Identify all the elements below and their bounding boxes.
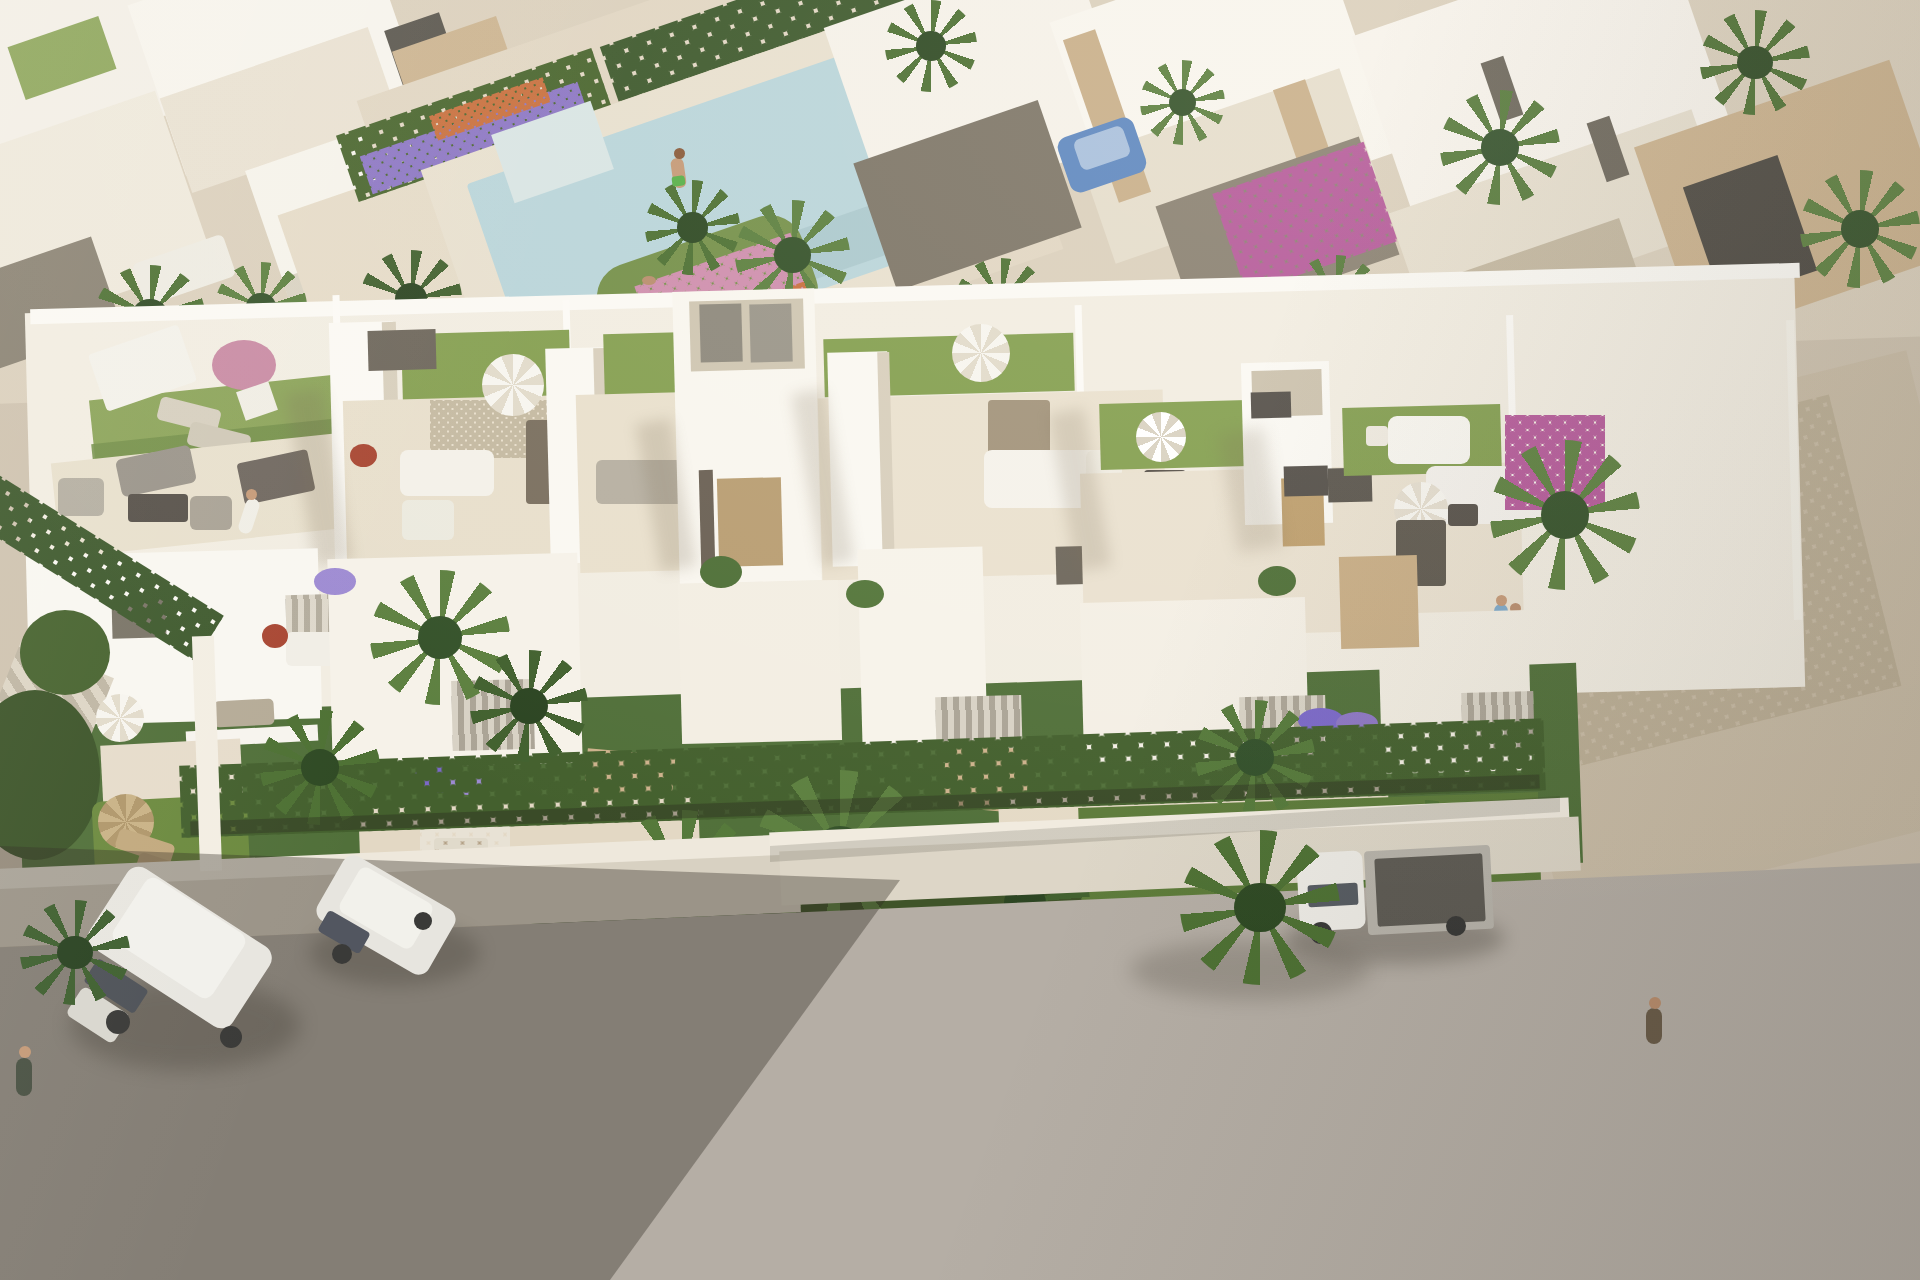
unit2-storage-box xyxy=(367,329,436,371)
unit4-umbrella xyxy=(952,324,1010,382)
truck-wheel-2 xyxy=(1446,916,1466,936)
balcony-plant-2 xyxy=(846,580,884,608)
palm-tr-1-center xyxy=(916,31,945,60)
stone-fin-3 xyxy=(1339,555,1419,649)
unit6-daybed-white xyxy=(1388,416,1470,464)
island-palm-2-center xyxy=(774,237,811,272)
unit2-sofa-white xyxy=(400,450,494,496)
palm-tr-5-center xyxy=(1841,210,1879,248)
van1-wheel-1 xyxy=(106,1010,130,1034)
center-tower-skylight-2 xyxy=(749,303,793,362)
roof-planter-purple xyxy=(314,568,356,595)
left-white-umbrella xyxy=(96,694,144,742)
front-palm-3-center xyxy=(510,688,548,724)
unit2-chaise xyxy=(402,500,454,540)
left-road-tree-center xyxy=(57,936,92,970)
van2-wheel-1 xyxy=(332,944,352,964)
left-roof-armchair-2 xyxy=(190,496,232,530)
balcony-plant-3 xyxy=(1258,566,1296,596)
unit6-side-table xyxy=(1366,426,1388,446)
truck-bed-inner xyxy=(1374,853,1485,927)
van1-wheel-2 xyxy=(220,1026,242,1048)
road-person-body xyxy=(16,1058,32,1096)
unit2-umbrella xyxy=(482,354,544,416)
balcony-person-1-head xyxy=(1496,595,1507,606)
front-palm-2-center xyxy=(418,616,463,659)
unit5-pinwheel-umbrella xyxy=(1136,412,1186,462)
person-pool-deck-shorts xyxy=(671,175,685,187)
big-palm-right-end-center xyxy=(1541,491,1589,539)
front-palm-1-center xyxy=(301,749,339,786)
left-tree-dark-2 xyxy=(20,610,110,695)
island-palm-1-center xyxy=(677,212,707,242)
sidewalk-person-body xyxy=(1646,1008,1662,1044)
sidewalk-person-head xyxy=(1649,997,1661,1009)
left-lounger-pair xyxy=(213,698,274,727)
planter-box-1 xyxy=(1251,391,1292,418)
aerial-3d-render xyxy=(0,0,1920,1280)
road-person-head xyxy=(19,1046,31,1058)
palm-tr-2-center xyxy=(1169,89,1196,116)
balcony-plant-1 xyxy=(700,556,742,588)
center-tower-door-wood xyxy=(717,477,783,567)
left-roof-coffee-table xyxy=(128,494,188,522)
front-palm-7-center xyxy=(1236,739,1274,776)
road-palm-overhang-center xyxy=(1234,883,1285,933)
left-roof-armchair-1 xyxy=(58,478,104,516)
unit2-planter-red xyxy=(350,444,377,467)
center-tower-door-slot xyxy=(699,470,716,568)
left-roof-person-head xyxy=(246,489,257,500)
swimmer-2 xyxy=(642,276,656,285)
palm-tr-4-center xyxy=(1737,46,1772,80)
center-tower-skylight-1 xyxy=(699,303,743,362)
person-pool-deck-head xyxy=(674,148,685,159)
palm-tr-3-center xyxy=(1481,129,1519,166)
planter-box-2 xyxy=(1284,465,1329,496)
van2-wheel-2 xyxy=(414,912,432,930)
unit6-coffee-table xyxy=(1448,504,1478,526)
lower-volume-2 xyxy=(678,580,842,744)
left-balcony-red-plant xyxy=(262,624,288,648)
